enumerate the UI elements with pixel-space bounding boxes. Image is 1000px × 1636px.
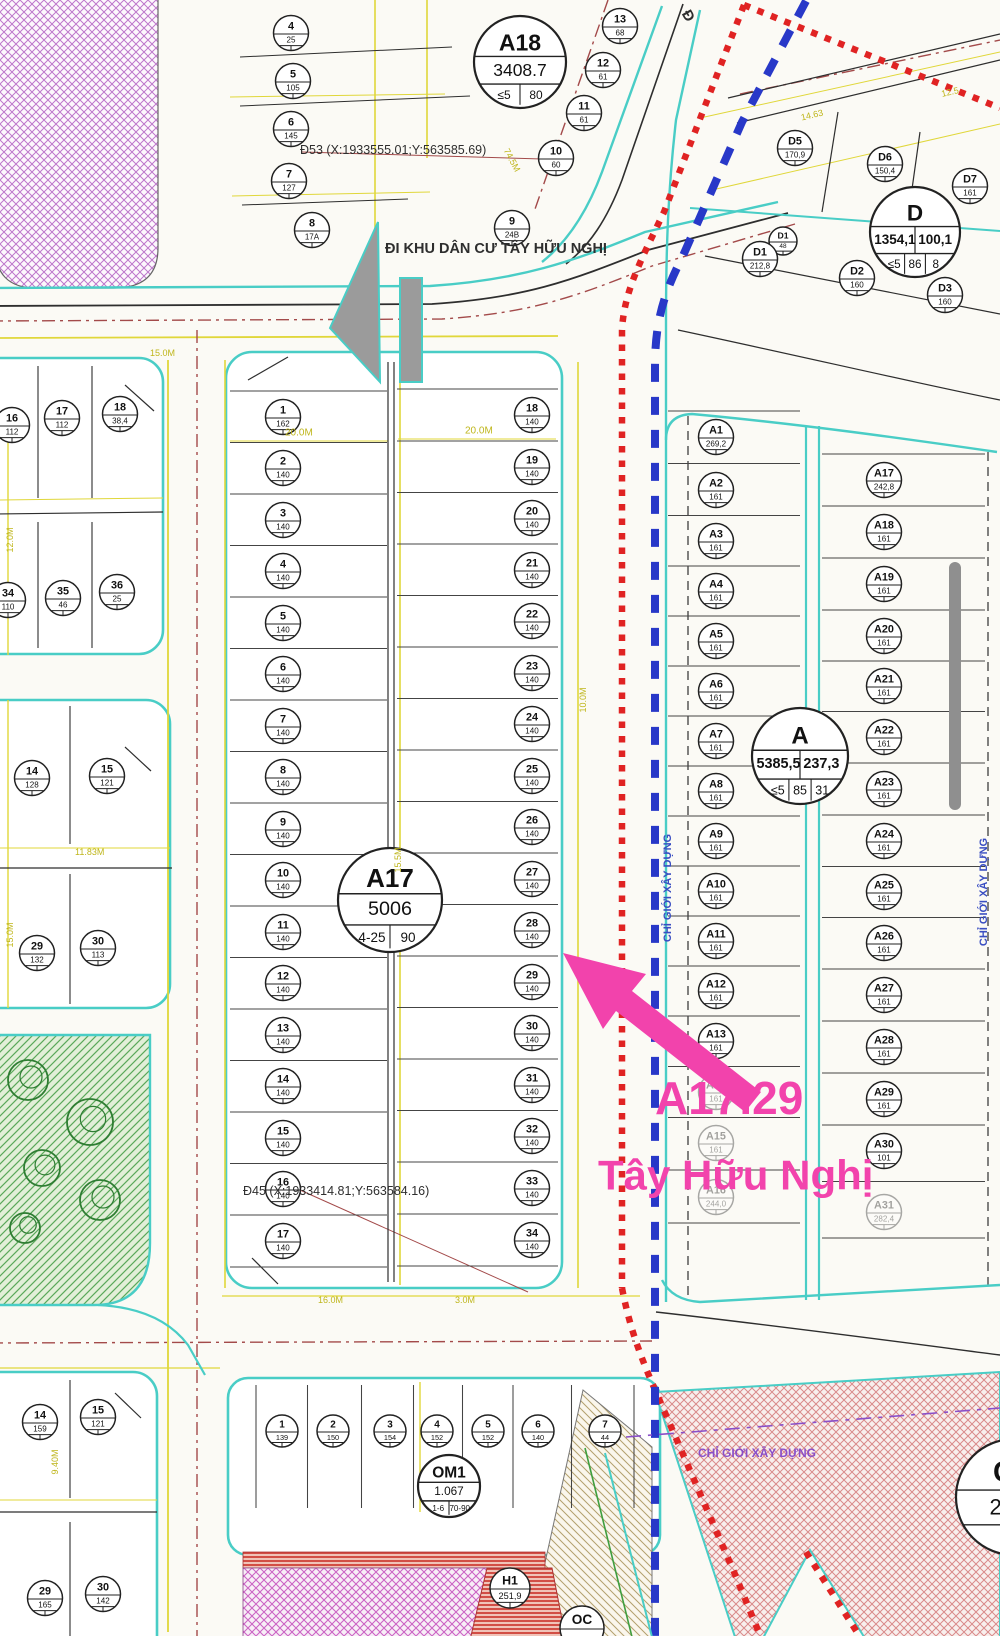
plot-A19: A19161 [867,567,902,602]
svg-text:48: 48 [779,243,787,250]
plot-A31: A31282,4 [867,1195,902,1230]
plot-7: 744 [589,1415,621,1447]
plot-6: 6145 [274,112,309,147]
map-label: 20.0M [285,428,313,439]
plot-4: 4152 [421,1415,453,1447]
svg-text:161: 161 [877,535,891,544]
map-label: ĐI KHU DÂN CƯ TÂY HỮU NGHỊ [385,239,607,257]
svg-text:26: 26 [526,814,538,826]
map-label: CHỈ GIỚI XÂY DỰNG [698,1445,816,1460]
svg-text:140: 140 [276,626,290,635]
svg-text:142: 142 [96,1597,110,1606]
svg-text:A: A [791,722,808,749]
plot-A18: A18161 [867,515,902,550]
plot-A11: A11161 [699,924,734,959]
plot-11: 1161 [567,96,602,131]
plot-8: 817A [295,213,330,248]
plot-14: 14159 [23,1405,58,1440]
block-label-a17: A1750064-2590 [338,848,442,952]
svg-text:132: 132 [30,956,44,965]
map-label: Đ45 (X:1933414.81;Y:563584.16) [243,1184,429,1198]
svg-text:A17: A17 [874,467,894,479]
svg-text:1: 1 [280,404,286,416]
hatch-area-purple-topleft [0,0,158,288]
svg-text:140: 140 [525,573,539,582]
svg-text:1354,1: 1354,1 [874,232,916,247]
svg-text:237,3: 237,3 [803,756,839,772]
svg-text:≤5: ≤5 [771,784,785,798]
svg-text:6: 6 [280,661,286,673]
svg-text:127: 127 [282,184,296,193]
svg-text:140: 140 [525,1139,539,1148]
svg-text:13: 13 [277,1022,289,1034]
plot-3: 3154 [374,1415,406,1447]
plot-28: 28140 [515,913,550,948]
svg-text:140: 140 [525,985,539,994]
svg-text:140: 140 [276,1089,290,1098]
plot-1: 1139 [266,1415,298,1447]
svg-text:150,4: 150,4 [875,167,896,176]
svg-text:25: 25 [287,36,296,45]
svg-text:32: 32 [526,1123,538,1135]
svg-text:140: 140 [525,882,539,891]
svg-text:161: 161 [709,544,723,553]
svg-text:D6: D6 [878,151,892,163]
svg-text:46: 46 [59,601,68,610]
svg-text:5385,5: 5385,5 [757,756,801,772]
svg-text:34: 34 [2,587,14,599]
svg-text:A31: A31 [874,1199,894,1211]
plot-30: 30113 [81,931,116,966]
plot-14: 14140 [266,1069,301,1104]
svg-text:D1: D1 [753,246,767,258]
svg-text:4: 4 [434,1419,440,1430]
plot-29: 29165 [28,1581,63,1616]
plot-17: 17140 [266,1224,301,1259]
plot-30: 30140 [515,1016,550,1051]
svg-text:140: 140 [276,832,290,841]
svg-text:12: 12 [277,970,289,982]
map-label: 10.0M [578,687,588,712]
map-label: Đ53 (X:1933555.01;Y:563585.69) [300,143,486,157]
svg-text:44: 44 [601,1433,609,1442]
svg-text:3408.7: 3408.7 [493,60,546,80]
svg-text:161: 161 [709,644,723,653]
svg-text:15: 15 [101,763,113,775]
svg-text:282,4: 282,4 [874,1215,895,1224]
plot-18: 1838,4 [103,397,138,432]
plot-9: 9140 [266,812,301,847]
svg-text:10: 10 [277,867,289,879]
svg-text:60: 60 [552,161,561,170]
svg-text:A25: A25 [874,879,894,891]
plot-A29: A29161 [867,1082,902,1117]
plot-2: 2140 [266,451,301,486]
plot-25: 25140 [515,759,550,794]
svg-text:10: 10 [550,145,562,157]
svg-text:161: 161 [877,740,891,749]
plot-10: 1060 [539,141,574,176]
svg-text:68: 68 [616,29,625,38]
svg-text:85: 85 [793,784,807,798]
svg-text:A12: A12 [706,978,726,990]
plot-A24: A24161 [867,824,902,859]
svg-text:A18: A18 [874,519,894,531]
svg-text:9: 9 [509,215,515,227]
svg-text:D2: D2 [850,265,864,277]
plot-A17: A17242,8 [867,463,902,498]
svg-text:30: 30 [92,935,104,947]
svg-text:A19: A19 [874,571,894,583]
plot-A8: A8161 [699,774,734,809]
plot-A2: A2161 [699,473,734,508]
svg-text:A17: A17 [366,863,414,893]
svg-text:90: 90 [401,930,416,945]
svg-text:A10: A10 [706,878,726,890]
svg-text:140: 140 [525,1088,539,1097]
plot-4: 4140 [266,554,301,589]
svg-text:161: 161 [877,587,891,596]
map-label: 15.5M [393,847,403,872]
svg-text:140: 140 [525,624,539,633]
svg-text:A2: A2 [709,477,723,489]
plot-6: 6140 [266,657,301,692]
plot-8: 8140 [266,760,301,795]
svg-text:A28: A28 [874,1034,894,1046]
plot-21: 21140 [515,553,550,588]
svg-text:8: 8 [309,217,315,229]
svg-text:121: 121 [100,779,114,788]
plot-H1: H1251,9 [490,1568,530,1608]
svg-text:18: 18 [114,401,126,413]
svg-text:113: 113 [92,951,105,960]
svg-text:D5: D5 [788,135,802,147]
svg-text:6: 6 [288,116,294,128]
block-label-om1: OM11.0671-670-90 [418,1455,480,1517]
svg-text:A18: A18 [499,30,541,56]
plot-A12: A12161 [699,974,734,1009]
svg-text:161: 161 [877,792,891,801]
svg-text:14: 14 [277,1073,289,1085]
plot-A10: A10161 [699,874,734,909]
svg-text:11: 11 [578,100,589,112]
svg-text:161: 161 [709,594,723,603]
svg-text:21: 21 [526,557,538,569]
svg-text:112: 112 [56,421,69,430]
svg-text:D7: D7 [963,173,977,185]
svg-text:140: 140 [276,729,290,738]
svg-text:29: 29 [31,940,43,952]
plot-26: 26140 [515,810,550,845]
svg-text:140: 140 [525,418,539,427]
svg-text:A22: A22 [874,724,894,736]
svg-text:A24: A24 [874,828,894,840]
svg-text:A3: A3 [709,528,723,540]
plot-14: 14128 [15,761,50,796]
svg-text:110: 110 [2,603,15,612]
map-label: 15.0M [5,922,15,947]
svg-text:A6: A6 [709,678,723,690]
plot-31: 31140 [515,1068,550,1103]
svg-text:5: 5 [290,68,296,80]
plot-A6: A6161 [699,674,734,709]
plot-A1: A1269,2 [699,420,734,455]
map-label: 9.40M [50,1449,60,1474]
svg-text:140: 140 [276,780,290,789]
svg-text:33: 33 [526,1175,538,1187]
svg-text:24: 24 [526,711,538,723]
red-stripe-band [243,1552,545,1568]
svg-text:17: 17 [56,405,68,417]
svg-text:6: 6 [535,1419,541,1430]
svg-text:17: 17 [277,1228,289,1240]
svg-text:A26: A26 [874,930,894,942]
svg-text:140: 140 [525,1191,539,1200]
plot-D7: D7161 [953,169,988,204]
plot-A4: A4161 [699,574,734,609]
plot-15: 15140 [266,1121,301,1156]
svg-text:140: 140 [525,676,539,685]
svg-text:A7: A7 [709,728,723,740]
plot-32: 32140 [515,1119,550,1154]
svg-text:140: 140 [525,933,539,942]
svg-text:34: 34 [526,1227,538,1239]
svg-text:128: 128 [25,781,39,790]
plot-4: 425 [274,16,309,51]
svg-text:9: 9 [280,816,286,828]
plot-A21: A21161 [867,669,902,704]
svg-text:161: 161 [877,895,891,904]
svg-text:3: 3 [280,507,286,519]
svg-text:5006: 5006 [368,898,412,920]
svg-text:16: 16 [6,412,18,424]
plot-19: 19140 [515,450,550,485]
svg-text:161: 161 [877,844,891,853]
svg-text:140: 140 [525,1243,539,1252]
plot-2: 2150 [317,1415,349,1447]
svg-text:61: 61 [599,73,608,82]
svg-text:2: 2 [330,1419,336,1430]
plot-3: 3140 [266,503,301,538]
svg-text:5: 5 [485,1419,491,1430]
plot-5: 5105 [276,64,311,99]
svg-text:7: 7 [286,168,292,180]
plot-15: 15121 [81,1400,116,1435]
svg-text:≤5: ≤5 [888,258,901,271]
plot-35: 3546 [46,581,81,616]
map-label: 15.0M [150,348,175,358]
map-label: CHỈ GIỚI XÂY DỰNG [977,838,990,946]
svg-text:A8: A8 [709,778,723,790]
plot-16: 16112 [0,408,30,443]
svg-text:80: 80 [529,88,543,102]
svg-text:4-25: 4-25 [358,930,385,945]
svg-text:165: 165 [38,1601,52,1610]
plot-D3: D3160 [928,278,963,313]
svg-text:161: 161 [709,694,723,703]
svg-text:161: 161 [877,639,891,648]
svg-text:161: 161 [709,844,723,853]
svg-text:A1: A1 [709,424,723,436]
plot-27: 27140 [515,862,550,897]
svg-text:2538: 2538 [989,1494,1000,1519]
svg-text:A5: A5 [709,628,723,640]
plot-D6: D6150,4 [868,147,903,182]
svg-text:7: 7 [602,1419,608,1430]
plot-A28: A28161 [867,1030,902,1065]
plot-17: 17112 [45,401,80,436]
annotation-area-name: Tây Hữu Nghị [598,1152,873,1199]
plot-A25: A25161 [867,875,902,910]
svg-text:35: 35 [57,585,69,597]
svg-text:170,9: 170,9 [785,151,806,160]
svg-text:140: 140 [276,1141,290,1150]
svg-text:13: 13 [614,13,626,25]
svg-text:160: 160 [938,298,952,307]
svg-text:61: 61 [580,116,589,125]
svg-text:20: 20 [526,505,538,517]
map-label: CHỈ GIỚI XÂY DỰNG [661,834,674,942]
svg-text:2: 2 [280,455,286,467]
svg-text:140: 140 [525,779,539,788]
svg-text:3: 3 [387,1419,393,1430]
svg-text:23: 23 [526,660,538,672]
svg-text:140: 140 [276,574,290,583]
svg-text:15: 15 [277,1125,289,1137]
svg-text:4: 4 [280,558,286,570]
svg-text:154: 154 [384,1433,396,1442]
block-label-d: D1354,1100,1≤5868 [870,187,960,277]
svg-text:12: 12 [597,57,609,69]
plot-36: 3625 [100,575,135,610]
svg-text:A21: A21 [874,673,894,685]
gray-median-bar [949,562,961,810]
svg-text:A9: A9 [709,828,723,840]
plot-A5: A5161 [699,624,734,659]
plot-A9: A9161 [699,824,734,859]
plot-A7: A7161 [699,724,734,759]
svg-text:269,2: 269,2 [706,440,727,449]
svg-text:38,4: 38,4 [112,417,128,426]
svg-text:160: 160 [850,281,864,290]
plot-20: 20140 [515,501,550,536]
svg-text:161: 161 [877,946,891,955]
svg-text:D: D [907,201,923,226]
svg-text:CC: CC [993,1457,1000,1489]
svg-text:161: 161 [709,744,723,753]
map-label: 11.83M [75,847,104,857]
svg-text:A23: A23 [874,776,894,788]
plot-12: 12140 [266,966,301,1001]
svg-text:1: 1 [279,1419,285,1430]
svg-text:100,1: 100,1 [918,232,952,247]
svg-text:140: 140 [525,830,539,839]
plot-23: 23140 [515,656,550,691]
svg-text:18: 18 [526,402,538,414]
svg-text:212,8: 212,8 [750,262,771,271]
svg-text:D3: D3 [938,282,952,294]
svg-text:140: 140 [276,523,290,532]
svg-text:11: 11 [277,919,288,931]
svg-text:A15: A15 [706,1130,726,1142]
svg-text:161: 161 [877,689,891,698]
plot-10: 10140 [266,863,301,898]
svg-text:8: 8 [280,764,286,776]
svg-text:29: 29 [39,1585,51,1597]
svg-text:121: 121 [91,1420,105,1429]
svg-text:145: 145 [284,132,298,141]
plot-24: 24140 [515,707,550,742]
svg-text:A20: A20 [874,623,894,635]
plot-22: 22140 [515,604,550,639]
map-label: 20.0M [465,426,493,437]
svg-text:251,9: 251,9 [499,1591,522,1601]
svg-text:161: 161 [709,894,723,903]
plot-D1: D1212,8 [743,242,778,277]
svg-text:28: 28 [526,917,538,929]
svg-text:140: 140 [525,727,539,736]
plot-5: 5140 [266,606,301,641]
svg-text:152: 152 [482,1433,494,1442]
plot-12: 1261 [586,53,621,88]
svg-text:150: 150 [327,1433,339,1442]
block-bottomleft-outline [0,1372,157,1636]
block-upperleft-outline [0,358,163,654]
svg-text:140: 140 [532,1433,544,1442]
svg-text:140: 140 [276,935,290,944]
svg-text:14: 14 [26,765,38,777]
plot-A20: A20161 [867,619,902,654]
svg-text:A13: A13 [706,1028,726,1040]
svg-text:25: 25 [113,595,122,604]
svg-text:105: 105 [286,84,300,93]
plot-13: 1368 [603,9,638,44]
svg-text:161: 161 [709,1044,723,1053]
map-viewport: 1162214031404140514061407140814091401014… [0,0,1000,1636]
hatch-area-pink-bottom [243,1568,488,1636]
block-label-a: A5385,5237,3≤58531 [752,708,848,804]
svg-text:31: 31 [526,1072,538,1084]
plot-29: 29132 [20,936,55,971]
svg-text:161: 161 [709,794,723,803]
plot-A3: A3161 [699,524,734,559]
plot-30: 30142 [86,1577,121,1612]
svg-text:22: 22 [526,608,538,620]
svg-text:OC: OC [572,1612,593,1627]
svg-text:140: 140 [525,521,539,530]
svg-text:161: 161 [709,994,723,1003]
plot-34: 34140 [515,1223,550,1258]
svg-text:5: 5 [280,610,286,622]
svg-text:140: 140 [276,1038,290,1047]
svg-text:A11: A11 [706,928,725,940]
plot-6: 6140 [522,1415,554,1447]
svg-text:1-6: 1-6 [432,1504,444,1513]
svg-text:≤5: ≤5 [497,88,511,102]
svg-text:14: 14 [34,1409,46,1421]
svg-text:140: 140 [276,471,290,480]
plot-7: 7127 [272,164,307,199]
green-park-area [0,1035,150,1305]
svg-text:27: 27 [526,866,538,878]
plot-15: 15121 [90,759,125,794]
svg-text:140: 140 [525,470,539,479]
svg-text:4: 4 [288,20,294,32]
plot-A23: A23161 [867,772,902,807]
svg-text:140: 140 [276,1244,290,1253]
svg-text:D1: D1 [777,231,788,241]
svg-text:140: 140 [276,883,290,892]
